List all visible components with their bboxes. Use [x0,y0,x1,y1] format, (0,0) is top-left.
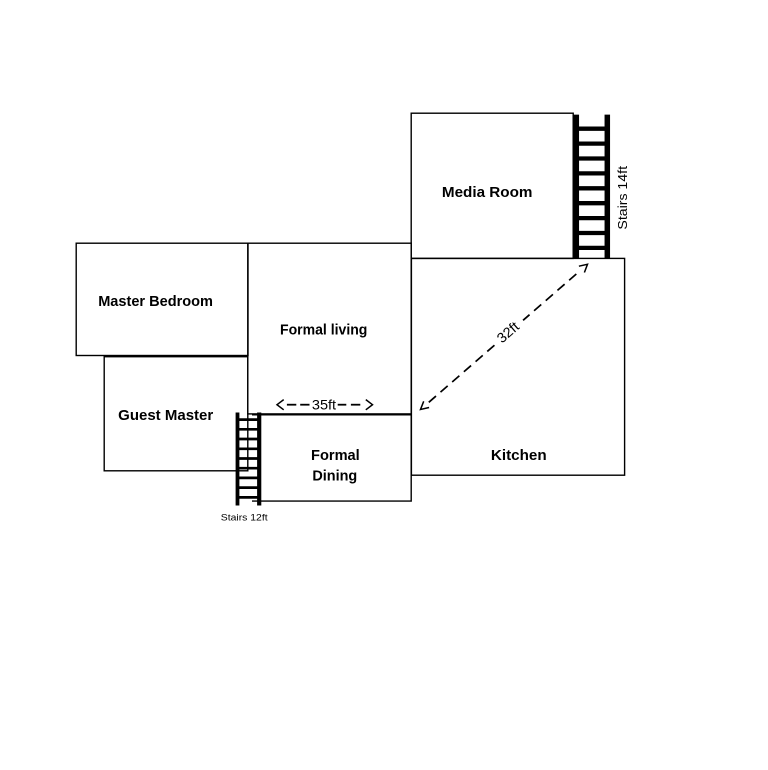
svg-text:35ft: 35ft [312,397,336,413]
svg-text:Formal living: Formal living [280,321,367,338]
svg-text:Dining: Dining [312,468,357,485]
svg-text:Media Room: Media Room [442,184,533,201]
svg-text:Kitchen: Kitchen [491,447,547,464]
svg-text:Formal: Formal [311,447,360,464]
svg-text:Guest Master: Guest Master [118,407,213,424]
svg-text:Stairs 12ft: Stairs 12ft [221,513,268,524]
svg-text:Stairs 14ft: Stairs 14ft [616,165,630,229]
svg-text:Master Bedroom: Master Bedroom [98,293,213,310]
